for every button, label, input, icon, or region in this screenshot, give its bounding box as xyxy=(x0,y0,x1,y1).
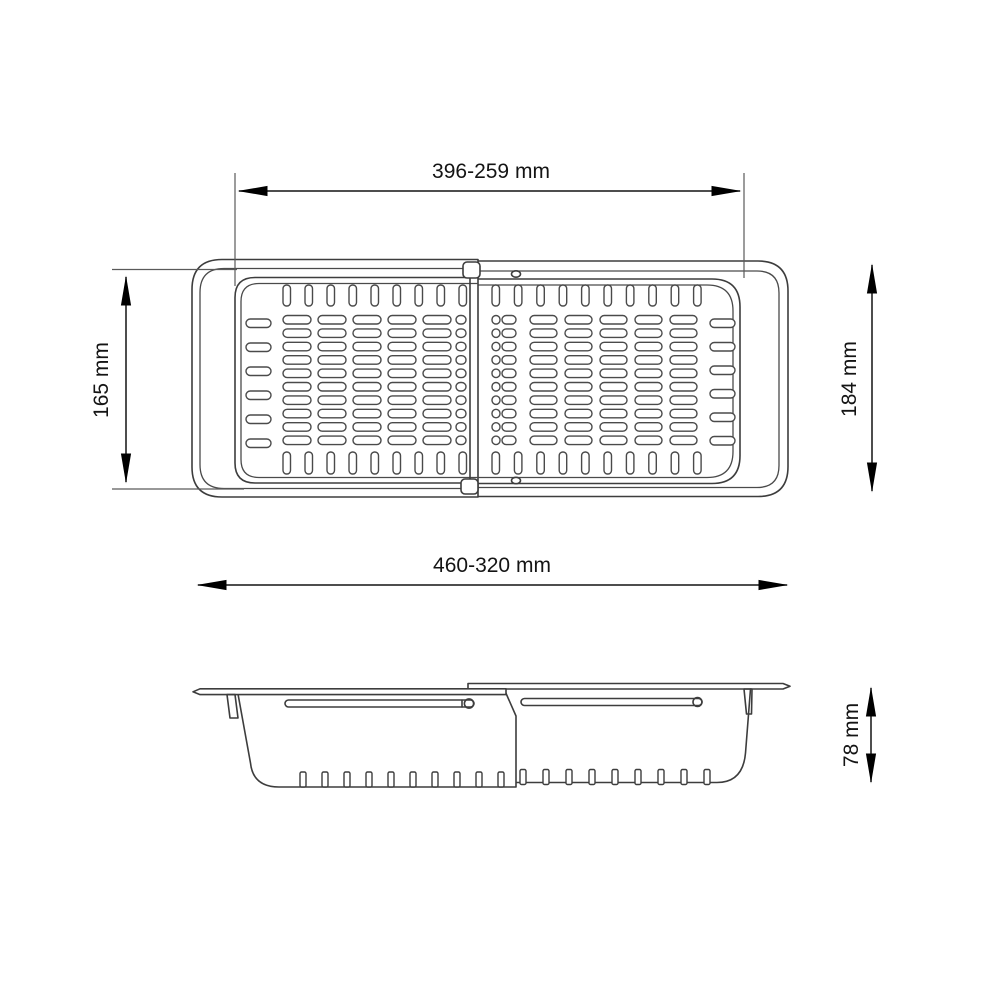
drain-slot xyxy=(393,452,401,474)
drain-foot-slot xyxy=(388,772,394,787)
dimension-label: 165 mm xyxy=(90,342,113,418)
right-tray-body-profile xyxy=(514,689,751,783)
drain-slot xyxy=(423,356,451,365)
drain-slot xyxy=(283,285,291,306)
drain-slot xyxy=(671,285,679,306)
drain-slot xyxy=(388,383,416,392)
drain-slot xyxy=(600,316,627,325)
drain-slot xyxy=(283,356,311,365)
drain-slot xyxy=(502,316,516,325)
dimension-label: 78 mm xyxy=(840,703,863,767)
drain-foot-slot xyxy=(432,772,438,787)
drain-slot xyxy=(456,342,466,351)
drain-slot xyxy=(670,383,697,392)
drain-slot xyxy=(353,396,381,405)
drain-foot-slot xyxy=(658,770,664,785)
drain-slot xyxy=(353,369,381,378)
drain-slot xyxy=(318,436,346,445)
drain-slot xyxy=(353,342,381,351)
drain-foot-slot xyxy=(322,772,328,787)
drain-slot xyxy=(530,396,557,405)
drain-slot xyxy=(502,369,516,378)
drain-slot xyxy=(649,285,657,306)
drain-slot xyxy=(635,436,662,445)
drain-slot xyxy=(559,285,567,306)
drain-slot xyxy=(459,452,467,474)
drain-foot-slot xyxy=(498,772,504,787)
drain-slot xyxy=(600,383,627,392)
drain-foot-slot xyxy=(410,772,416,787)
drain-slot xyxy=(388,396,416,405)
top-view xyxy=(462,261,788,497)
drain-slot xyxy=(353,423,381,432)
drain-slot xyxy=(423,329,451,338)
drain-slot xyxy=(537,452,545,474)
drain-slot xyxy=(246,343,271,352)
drain-slot xyxy=(530,356,557,365)
drain-slot xyxy=(600,409,627,418)
drain-slot xyxy=(626,285,634,306)
drain-slot xyxy=(388,329,416,338)
drain-slot xyxy=(530,423,557,432)
drain-slot xyxy=(537,285,545,306)
drain-slot xyxy=(388,342,416,351)
drain-slot xyxy=(604,452,612,474)
drain-slot xyxy=(456,329,466,338)
drain-slot xyxy=(283,396,311,405)
drain-slot xyxy=(694,452,702,474)
left-tray-hook-tab xyxy=(227,695,238,718)
drain-slot xyxy=(283,383,311,392)
drain-slot xyxy=(305,285,313,306)
drain-slot xyxy=(371,452,379,474)
drain-slot xyxy=(502,436,516,445)
drain-foot-slot xyxy=(520,770,526,785)
drain-slot xyxy=(604,285,612,306)
slide-latch-top xyxy=(463,262,480,278)
drain-slot xyxy=(327,452,335,474)
drain-slot xyxy=(514,285,522,306)
drain-slot xyxy=(710,390,735,399)
drain-slot xyxy=(388,356,416,365)
drain-slot xyxy=(565,369,592,378)
drain-slot xyxy=(459,285,467,306)
drain-slot xyxy=(456,316,466,325)
drain-slot xyxy=(318,383,346,392)
drain-foot-slot xyxy=(300,772,306,787)
drain-slot xyxy=(530,329,557,338)
dimension-side-height: 78 mm xyxy=(840,688,871,782)
right-tray-drain-feet xyxy=(520,770,710,785)
drain-slot xyxy=(565,409,592,418)
drain-slot xyxy=(582,452,590,474)
drain-slot xyxy=(388,436,416,445)
drain-slot xyxy=(600,342,627,351)
pivot-pin-top xyxy=(512,271,521,277)
drain-slot xyxy=(670,329,697,338)
drain-slot xyxy=(565,342,592,351)
drain-slot xyxy=(670,409,697,418)
drain-slot xyxy=(283,436,311,445)
left-tray-top-slot-row xyxy=(283,285,467,306)
drain-slot xyxy=(349,452,357,474)
drain-foot-slot xyxy=(344,772,350,787)
drain-slot xyxy=(635,356,662,365)
drain-slot xyxy=(670,316,697,325)
drain-slot xyxy=(415,452,423,474)
drain-slot xyxy=(600,329,627,338)
technical-drawing: 396-259 mm 165 mm 184 mm 460-320 mm 78 m… xyxy=(0,0,1000,1000)
drain-slot xyxy=(456,423,466,432)
drain-slot xyxy=(492,436,500,445)
drain-slot xyxy=(415,285,423,306)
drain-slot xyxy=(670,342,697,351)
drain-slot xyxy=(283,452,291,474)
drain-slot xyxy=(502,409,516,418)
drain-slot xyxy=(246,319,271,328)
drain-slot xyxy=(423,423,451,432)
drain-foot-slot xyxy=(589,770,595,785)
drain-slot xyxy=(423,396,451,405)
drain-slot xyxy=(318,396,346,405)
drain-slot xyxy=(635,383,662,392)
drain-slot xyxy=(502,396,516,405)
drain-slot xyxy=(353,436,381,445)
drain-slot xyxy=(353,356,381,365)
drain-slot xyxy=(246,439,271,448)
drain-slot xyxy=(423,383,451,392)
dimension-right-depth: 184 mm xyxy=(838,265,872,491)
drain-slot xyxy=(318,329,346,338)
drain-slot xyxy=(318,369,346,378)
drain-slot xyxy=(635,409,662,418)
drain-slot xyxy=(492,452,500,474)
drain-slot xyxy=(502,356,516,365)
drain-slot xyxy=(456,356,466,365)
drain-slot xyxy=(649,452,657,474)
drain-slot xyxy=(635,329,662,338)
drain-slot xyxy=(492,342,500,351)
dimension-label: 396-259 mm xyxy=(432,160,550,183)
drain-slot xyxy=(388,316,416,325)
side-view-left xyxy=(193,689,516,787)
drain-slot xyxy=(670,423,697,432)
drain-slot xyxy=(502,423,516,432)
drain-slot xyxy=(582,285,590,306)
drain-slot xyxy=(710,343,735,352)
drain-slot xyxy=(492,316,500,325)
right-tray-rail-slot xyxy=(521,699,702,706)
drain-slot xyxy=(670,436,697,445)
drain-slot xyxy=(388,369,416,378)
drain-slot xyxy=(353,329,381,338)
drain-slot xyxy=(530,383,557,392)
drain-slot xyxy=(635,423,662,432)
drain-foot-slot xyxy=(454,772,460,787)
drain-slot xyxy=(492,396,500,405)
drain-slot xyxy=(514,452,522,474)
drain-slot xyxy=(502,383,516,392)
dimension-overall-length: 460-320 mm xyxy=(198,554,787,585)
drain-slot xyxy=(635,316,662,325)
drawing-canvas: 396-259 mm 165 mm 184 mm 460-320 mm 78 m… xyxy=(0,0,1000,1000)
drain-slot xyxy=(353,383,381,392)
drain-slot xyxy=(456,383,466,392)
drain-slot xyxy=(670,356,697,365)
drain-slot xyxy=(437,452,445,474)
drain-slot xyxy=(530,316,557,325)
drain-foot-slot xyxy=(543,770,549,785)
drain-slot xyxy=(600,369,627,378)
drain-slot xyxy=(353,316,381,325)
drain-slot xyxy=(694,285,702,306)
drain-slot xyxy=(600,436,627,445)
drain-slot xyxy=(635,369,662,378)
drain-slot xyxy=(318,316,346,325)
drain-slot xyxy=(371,285,379,306)
drain-slot xyxy=(530,409,557,418)
drain-slot xyxy=(565,356,592,365)
drain-slot xyxy=(671,452,679,474)
drain-slot xyxy=(349,285,357,306)
drain-slot xyxy=(423,342,451,351)
drain-slot xyxy=(283,423,311,432)
pivot-pin-bottom xyxy=(512,477,521,483)
drain-slot xyxy=(353,409,381,418)
drain-slot xyxy=(456,409,466,418)
drain-slot xyxy=(710,319,735,328)
drain-foot-slot xyxy=(566,770,572,785)
drain-slot xyxy=(318,409,346,418)
drain-foot-slot xyxy=(476,772,482,787)
drain-slot xyxy=(437,285,445,306)
drain-slot xyxy=(246,415,271,424)
left-tray-bottom-slot-row xyxy=(283,452,467,474)
drain-slot xyxy=(565,396,592,405)
drain-slot xyxy=(492,285,500,306)
drain-slot xyxy=(635,396,662,405)
drain-foot-slot xyxy=(635,770,641,785)
drain-slot xyxy=(565,436,592,445)
left-tray-rim-profile xyxy=(193,689,506,695)
right-tray-rim-profile xyxy=(468,684,790,690)
slide-latch-bottom xyxy=(461,479,478,494)
dimension-label: 460-320 mm xyxy=(433,554,551,577)
drain-slot xyxy=(318,356,346,365)
drain-slot xyxy=(600,423,627,432)
drain-foot-slot xyxy=(704,770,710,785)
drain-slot xyxy=(388,409,416,418)
drain-slot xyxy=(600,396,627,405)
drain-slot xyxy=(318,423,346,432)
drain-slot xyxy=(565,329,592,338)
drain-slot xyxy=(565,316,592,325)
drain-slot xyxy=(635,342,662,351)
drain-slot xyxy=(423,409,451,418)
drain-slot xyxy=(423,316,451,325)
drain-slot xyxy=(565,423,592,432)
drain-slot xyxy=(246,367,271,376)
drain-slot xyxy=(283,409,311,418)
drain-slot xyxy=(710,366,735,375)
drain-slot xyxy=(423,436,451,445)
drain-slot xyxy=(492,423,500,432)
drain-slot xyxy=(456,436,466,445)
drain-foot-slot xyxy=(612,770,618,785)
drain-slot xyxy=(318,342,346,351)
drain-slot xyxy=(626,452,634,474)
drain-slot xyxy=(530,342,557,351)
drain-slot xyxy=(492,409,500,418)
drain-slot xyxy=(388,423,416,432)
drain-slot xyxy=(393,285,401,306)
drain-foot-slot xyxy=(366,772,372,787)
drain-slot xyxy=(492,383,500,392)
drain-slot xyxy=(670,396,697,405)
drain-slot xyxy=(283,316,311,325)
drain-slot xyxy=(710,437,735,446)
drain-foot-slot xyxy=(681,770,687,785)
drain-slot xyxy=(283,342,311,351)
drain-slot xyxy=(492,329,500,338)
drain-slot xyxy=(502,329,516,338)
drain-slot xyxy=(492,356,500,365)
drain-slot xyxy=(530,369,557,378)
drain-slot xyxy=(530,436,557,445)
dimension-label: 184 mm xyxy=(838,341,861,417)
drain-slot xyxy=(456,369,466,378)
drain-slot xyxy=(600,356,627,365)
drain-slot xyxy=(710,413,735,422)
drain-slot xyxy=(423,369,451,378)
drain-slot xyxy=(492,369,500,378)
drain-slot xyxy=(559,452,567,474)
drain-slot xyxy=(456,396,466,405)
drain-slot xyxy=(283,329,311,338)
drain-slot xyxy=(502,342,516,351)
drain-slot xyxy=(670,369,697,378)
drain-slot xyxy=(327,285,335,306)
drain-slot xyxy=(283,369,311,378)
drain-slot xyxy=(246,391,271,400)
drain-slot xyxy=(565,383,592,392)
drain-slot xyxy=(305,452,313,474)
